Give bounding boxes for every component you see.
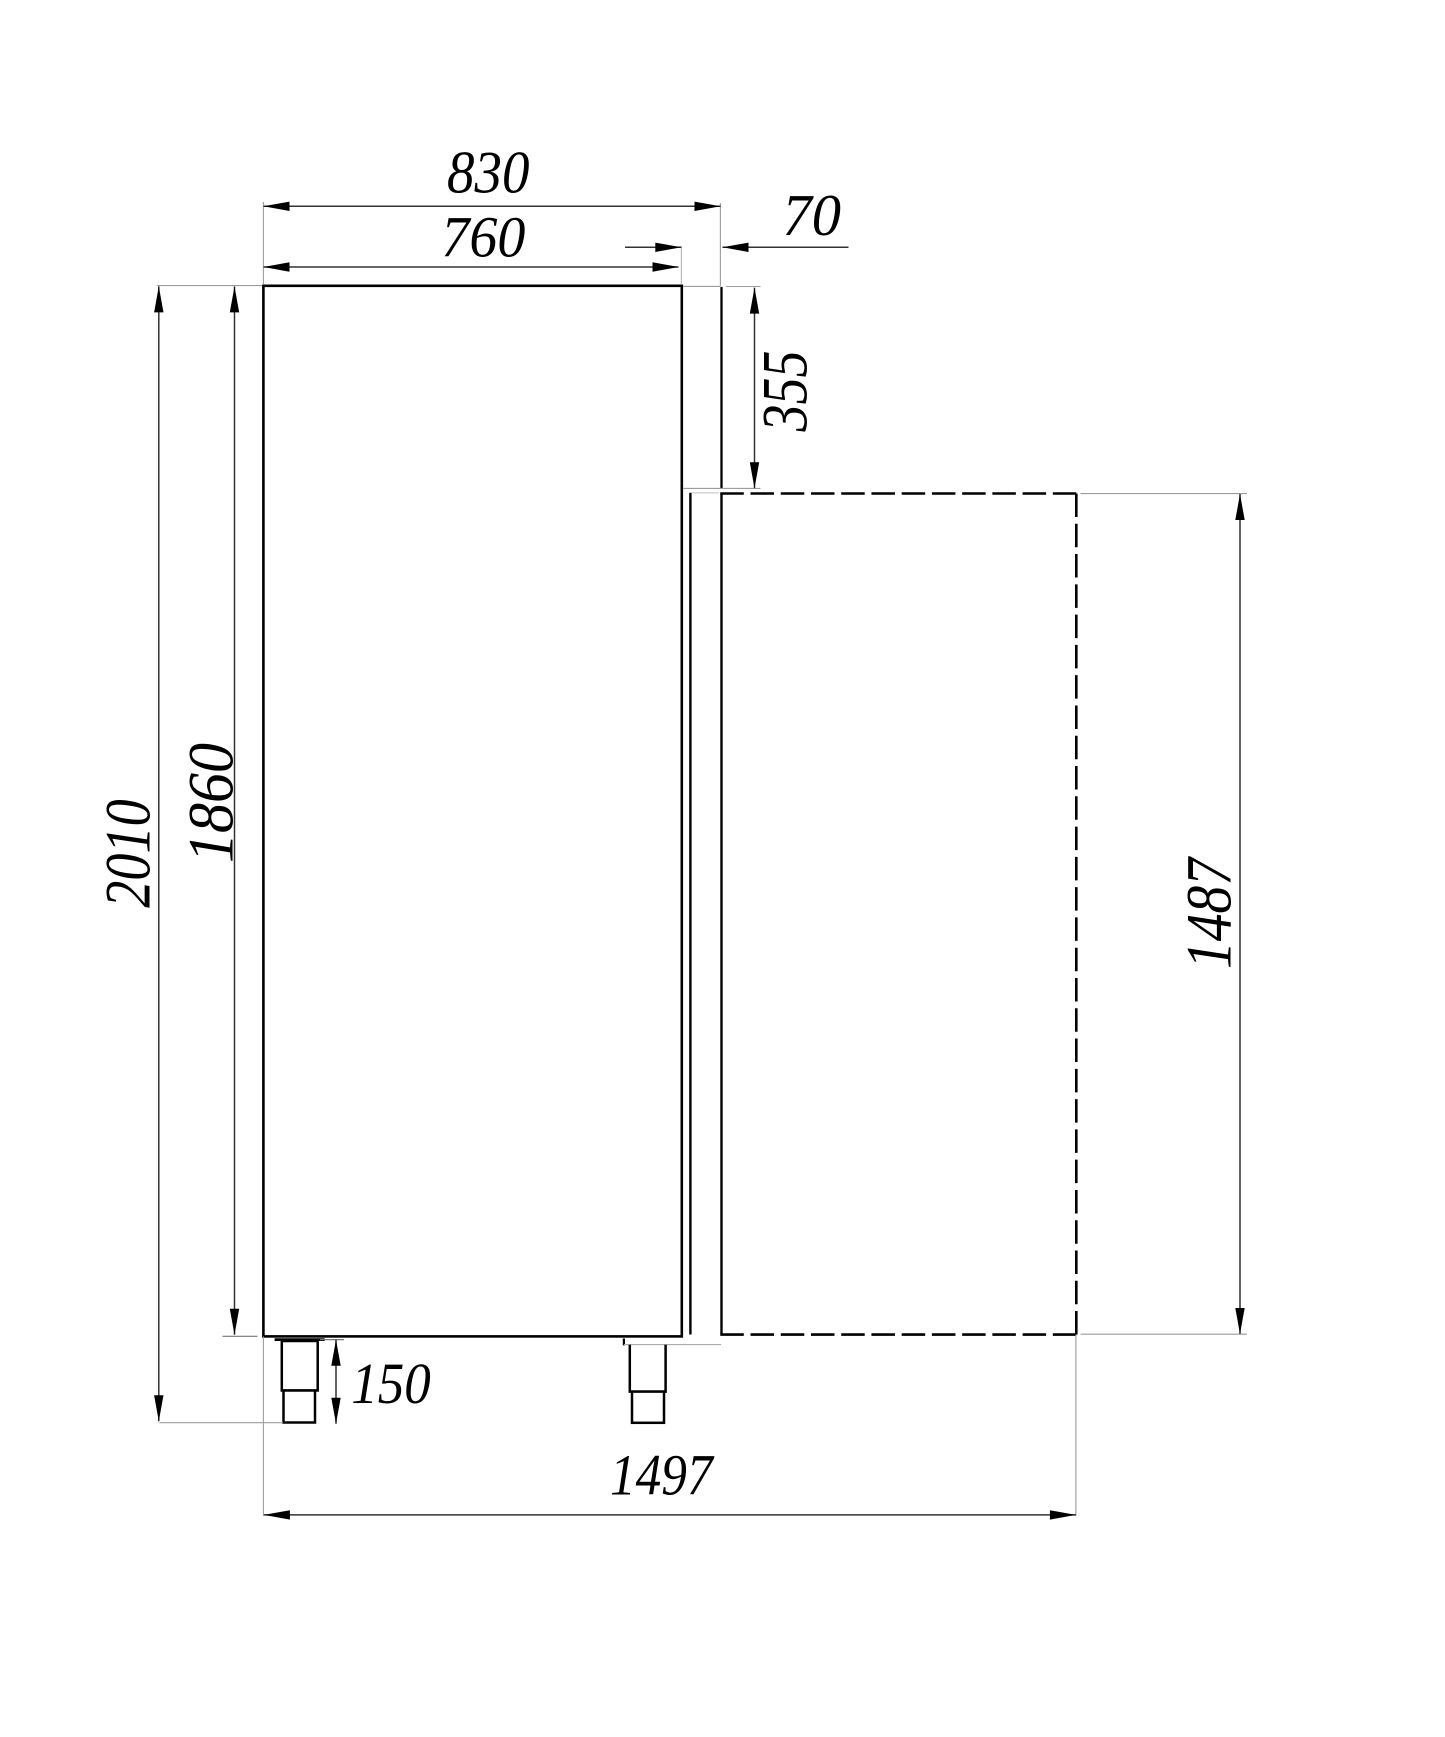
svg-text:830: 830 [447, 140, 530, 206]
svg-text:1497: 1497 [610, 1442, 714, 1507]
svg-text:70: 70 [783, 182, 842, 248]
svg-text:1860: 1860 [176, 743, 248, 863]
svg-text:2010: 2010 [93, 799, 165, 908]
svg-text:760: 760 [441, 205, 525, 270]
svg-text:355: 355 [750, 351, 822, 433]
svg-text:150: 150 [351, 1351, 431, 1416]
svg-text:1487: 1487 [1174, 856, 1246, 969]
